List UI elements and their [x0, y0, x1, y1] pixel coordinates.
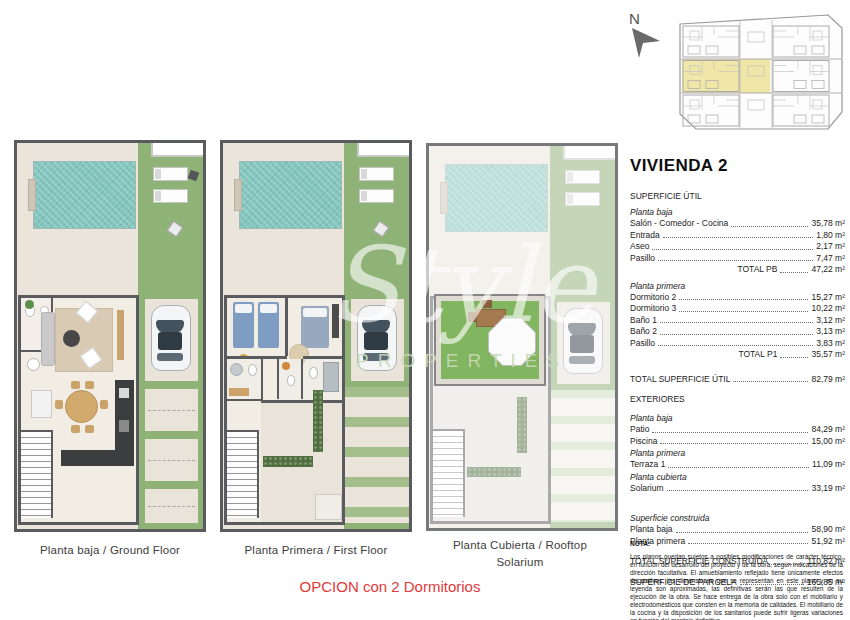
patio-pad: [145, 389, 198, 431]
option-note: OPCION con 2 Dormitorios: [180, 578, 600, 595]
total-row: TOTAL P135,57 m²: [630, 349, 845, 360]
chair-icon: [71, 425, 80, 433]
terrace-step: [315, 494, 342, 520]
bathroom-1: [227, 359, 263, 401]
terrace-planter: [263, 456, 313, 467]
pool-ladder-icon: [234, 179, 242, 211]
dining-table-icon: [65, 390, 98, 423]
patio-pad: [145, 439, 198, 481]
plan-caption-first: Planta Primera / First Floor: [220, 544, 412, 556]
washer-icon: [27, 358, 40, 371]
row-value: 82,79 m²: [811, 374, 845, 385]
surface-data-panel: VIVIENDA 2 SUPERFICIE ÚTIL Planta baja S…: [630, 156, 845, 587]
area-row: Patio84,29 m²: [630, 424, 845, 435]
row-label: Pasillo: [630, 253, 655, 264]
dotted-leader: [780, 272, 808, 273]
area-row: Dormitorio 215,27 m²: [630, 292, 845, 303]
area-row: Pasillo3,83 m²: [630, 338, 845, 349]
row-label: Aseo: [630, 241, 649, 252]
coffee-table-icon: [63, 330, 80, 347]
pool-ladder-icon: [28, 179, 36, 211]
bathroom-2: [305, 359, 342, 399]
chair-icon: [100, 400, 108, 409]
area-row: Solarium33,19 m²: [630, 483, 845, 494]
breakfast-table: [31, 390, 52, 418]
row-value: 35,57 m²: [811, 349, 845, 360]
section-header: Planta primera: [630, 281, 845, 291]
area-row: Dormitorio 310,22 m²: [630, 303, 845, 314]
chair-icon: [85, 381, 94, 389]
plant-icon: [25, 300, 34, 309]
dotted-leader: [780, 357, 808, 358]
nota-block: NOTA: Los planos quedan sujetos a posibl…: [630, 540, 843, 620]
sun-lounger-icon: [359, 189, 394, 203]
stairs: [433, 429, 465, 517]
row-value: 84,29 m²: [811, 424, 845, 435]
row-value: 3,12 m²: [816, 315, 845, 326]
dotted-leader: [676, 532, 809, 533]
row-label: TOTAL SUPERFICIE ÚTIL: [630, 374, 730, 385]
row-label: Pasillo: [630, 338, 655, 349]
terrace-planter: [313, 390, 323, 452]
total-util-row: TOTAL SUPERFICIE ÚTIL82,79 m²: [630, 374, 845, 385]
row-value: 15,27 m²: [811, 292, 845, 303]
shower-icon: [323, 362, 339, 392]
row-value: 3,13 m²: [816, 326, 845, 337]
row-value: 3,83 m²: [816, 338, 845, 349]
vanity: [229, 388, 249, 396]
row-value: 10,22 m²: [811, 303, 845, 314]
rooftop-plan: [426, 143, 618, 531]
area-row: Baño 13,12 m²: [630, 315, 845, 326]
row-label: Salón - Comedor - Cocina: [630, 218, 728, 229]
nota-label: NOTA:: [630, 540, 843, 547]
pergola-slats: [550, 390, 615, 522]
bed-icon: [233, 302, 254, 348]
solarium: [434, 294, 546, 386]
umbrella-icon: [488, 318, 536, 366]
area-row: Piscina15,00 m²: [630, 436, 845, 447]
row-label: Planta baja: [630, 524, 673, 535]
first-floor-plan: [220, 140, 412, 532]
section-header: Superficie construida: [630, 513, 845, 523]
bed-icon: [301, 306, 329, 348]
car-icon: [357, 305, 397, 371]
section-header: Planta baja: [630, 207, 845, 217]
patio-pad: [145, 489, 198, 523]
stove-icon: [119, 420, 129, 432]
ground-floor-plan: [14, 140, 206, 532]
row-label: Piscina: [630, 436, 657, 447]
bed-icon: [258, 302, 279, 348]
row-value: 58,90 m²: [811, 524, 845, 535]
row-label: Baño 2: [630, 326, 657, 337]
car-icon: [151, 305, 191, 371]
row-label: Solarium: [630, 483, 664, 494]
row-value: 11,09 m²: [812, 459, 845, 470]
area-row: Planta baja58,90 m²: [630, 524, 845, 535]
row-label: Terraza 1: [630, 459, 665, 470]
caption-line1: Planta Cubierta / Rooftop: [426, 537, 614, 554]
toilet-icon: [248, 364, 257, 376]
area-row: Baño 23,13 m²: [630, 326, 845, 337]
sofa: [41, 312, 55, 366]
exteriores-header: EXTERIORES: [630, 394, 845, 404]
shower-icon: [230, 363, 243, 376]
chair-icon: [71, 381, 80, 389]
area-row: Aseo2,17 m²: [630, 241, 845, 252]
chair-icon: [55, 400, 63, 409]
row-value: 35,78 m²: [811, 218, 845, 229]
dotted-leader: [660, 334, 813, 335]
pool: [33, 161, 136, 229]
kitchen-island: [61, 450, 134, 466]
pool: [445, 164, 548, 232]
sink-icon: [119, 388, 129, 398]
dotted-leader: [652, 249, 813, 250]
plan-caption-rooftop: Planta Cubierta / Rooftop Solarium: [426, 537, 614, 571]
dotted-leader: [663, 237, 813, 238]
sun-lounger-icon: [153, 189, 188, 203]
dotted-leader: [668, 467, 809, 468]
panel-subtitle: SUPERFICIE ÚTIL: [630, 191, 845, 201]
area-row: Terraza 111,09 m²: [630, 459, 845, 470]
console-table: [117, 310, 124, 360]
caption-line2: Solarium: [426, 554, 614, 571]
dotted-leader: [652, 432, 808, 433]
section-header: Planta cubierta: [630, 472, 845, 482]
plan-caption-ground: Planta baja / Ground Floor: [14, 544, 206, 556]
section-header: Planta primera: [630, 448, 845, 458]
row-label: TOTAL P1: [738, 349, 777, 360]
area-row: Entrada1,80 m²: [630, 230, 845, 241]
total-row: TOTAL PB47,22 m²: [630, 264, 845, 275]
dotted-leader: [660, 322, 813, 323]
row-label: TOTAL PB: [737, 264, 777, 275]
car-icon: [563, 308, 603, 374]
dotted-leader: [667, 490, 809, 491]
row-value: 33,19 m²: [811, 483, 845, 494]
stairs: [227, 430, 259, 518]
site-plan: [652, 8, 846, 138]
entry-walkway: [357, 143, 409, 157]
chair-icon: [85, 425, 94, 433]
dotted-leader: [679, 299, 808, 300]
row-value: 7,47 m²: [816, 253, 845, 264]
panel-title: VIVIENDA 2: [630, 156, 845, 176]
area-row: Pasillo7,47 m²: [630, 253, 845, 264]
dotted-leader: [658, 260, 813, 261]
house-interior: [18, 295, 139, 525]
section-header: Planta baja: [630, 413, 845, 423]
stairs: [21, 430, 53, 518]
dotted-leader: [731, 226, 808, 227]
pool: [239, 161, 342, 229]
sun-lounger-icon: [153, 167, 188, 181]
wc-room: [277, 359, 303, 399]
dotted-leader: [660, 443, 808, 444]
area-row: Salón - Comedor - Cocina35,78 m²: [630, 218, 845, 229]
row-value: 2,17 m²: [816, 241, 845, 252]
row-value: 47,22 m²: [811, 264, 845, 275]
row-label: Patio: [630, 424, 649, 435]
interior-wall: [285, 298, 288, 356]
dotted-leader: [679, 311, 808, 312]
chair-icon: [482, 300, 492, 308]
dotted-leader: [658, 345, 813, 346]
stool-icon: [282, 362, 290, 370]
dotted-leader: [733, 381, 808, 382]
nota-text: Los planos quedan sujetos a posibles mod…: [630, 553, 843, 620]
row-label: Dormitorio 2: [630, 292, 676, 303]
row-label: Entrada: [630, 230, 660, 241]
chair-icon: [468, 312, 476, 322]
north-label: N: [629, 10, 640, 27]
row-label: Baño 1: [630, 315, 657, 326]
pergola-slats: [344, 387, 409, 523]
desk: [332, 304, 339, 338]
row-label: Dormitorio 3: [630, 303, 676, 314]
row-value: 15,00 m²: [811, 436, 845, 447]
sun-lounger-icon: [359, 167, 394, 181]
entry-walkway: [151, 143, 203, 157]
toilet-icon: [309, 367, 318, 379]
house-interior: [224, 295, 345, 525]
row-value: 1,80 m²: [816, 230, 845, 241]
toilet-icon: [287, 375, 295, 386]
